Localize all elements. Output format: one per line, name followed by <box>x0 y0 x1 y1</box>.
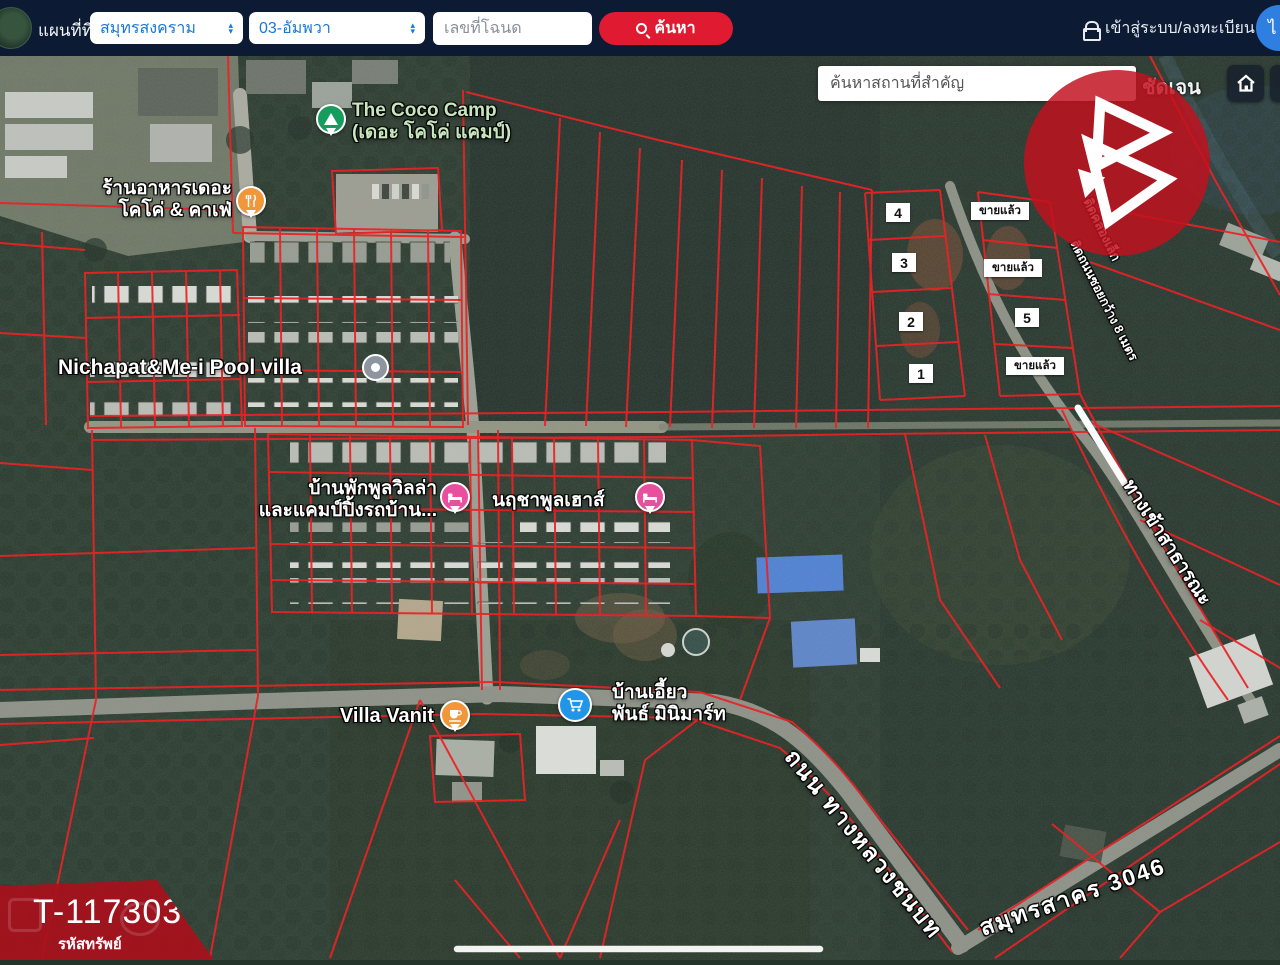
property-code-caption: รหัสทรัพย์ <box>58 932 122 956</box>
clear-overlay-button[interactable]: ชัดเจน <box>1142 71 1201 103</box>
dot-icon <box>371 363 380 372</box>
bed-icon <box>642 491 658 503</box>
lodging-pin-narucha[interactable] <box>635 482 665 512</box>
parcel-number-2: 2 <box>899 312 923 331</box>
camp-pin[interactable] <box>316 104 346 134</box>
store-poi[interactable] <box>558 688 592 722</box>
deed-number-input[interactable] <box>433 12 592 45</box>
land-map-app: { "header": { "app_title": "แผนที่ที่ดิน… <box>0 0 1280 960</box>
place-search-input[interactable] <box>818 66 1136 101</box>
search-icon <box>636 23 647 34</box>
poi-label-villa-vanit: Villa Vanit <box>328 705 434 728</box>
sold-badge: ขายแล้ว <box>984 259 1042 277</box>
cart-icon <box>566 697 584 713</box>
language-button[interactable]: ไ <box>1256 5 1280 51</box>
bed-icon <box>447 491 463 503</box>
layers-button[interactable]: ▤ <box>1270 65 1280 102</box>
parcel-number-4: 4 <box>886 203 910 222</box>
search-button-label: ค้นหา <box>654 16 695 41</box>
generic-poi-dot[interactable] <box>362 354 389 381</box>
parcel-number-5: 5 <box>1015 308 1039 327</box>
fork-knife-icon <box>244 194 258 208</box>
poi-label-narucha: นฤชาพูลเฮาส์ <box>492 490 605 512</box>
home-icon <box>1236 74 1256 93</box>
login-register-link[interactable]: เข้าสู่ระบบ/ลงทะเบียน <box>1083 16 1255 41</box>
sort-arrows-icon: ▴▾ <box>410 22 415 34</box>
parcel-number-3: 3 <box>892 253 916 272</box>
province-select[interactable]: สมุทรสงคราม ▴▾ <box>90 12 243 44</box>
tent-icon <box>324 113 338 125</box>
poi-label-baanpak: บ้านพักพูลวิลล่า และแคมป์ปิ้งรถบ้าน... <box>255 478 437 522</box>
parcel-number-1: 1 <box>909 364 933 383</box>
poi-label-coco-camp: The Coco Camp (เดอะ โคโค่ แคมป์) <box>352 100 511 144</box>
district-select-value: 03-อัมพวา <box>259 16 331 41</box>
cup-icon <box>448 708 462 722</box>
sort-arrows-icon: ▴▾ <box>228 22 233 34</box>
top-navbar: แผนที่ที่ดิน สมุทรสงคราม ▴▾ 03-อัมพวา ▴▾… <box>0 0 1280 56</box>
site-logo[interactable] <box>0 7 32 49</box>
satellite-map[interactable] <box>0 0 1280 960</box>
search-button[interactable]: ค้นหา <box>599 12 733 45</box>
language-label: ไ <box>1268 15 1277 42</box>
satellite-map-canvas <box>0 0 1280 960</box>
restaurant-pin[interactable] <box>236 186 266 216</box>
province-select-value: สมุทรสงคราม <box>100 16 196 41</box>
lodging-pin-baanpak[interactable] <box>440 482 470 512</box>
poi-label-restaurant: ร้านอาหารเดอะ โคโค่ & คาเฟ่ <box>42 178 232 222</box>
poi-label-baan-eaw: บ้านเอี้ยว พันธ์ มินิมาร์ท <box>612 682 726 726</box>
property-code: T-117303 <box>33 893 182 932</box>
sold-badge: ขายแล้ว <box>1006 357 1064 375</box>
poi-label-nichapat: Nichapat&Me-i Pool villa <box>58 356 302 380</box>
lock-icon <box>1083 21 1097 37</box>
district-select[interactable]: 03-อัมพวา ▴▾ <box>249 12 425 44</box>
login-label: เข้าสู่ระบบ/ลงทะเบียน <box>1105 16 1255 41</box>
home-button[interactable] <box>1227 65 1264 102</box>
sold-badge: ขายแล้ว <box>971 202 1029 220</box>
cafe-pin[interactable] <box>440 700 470 730</box>
